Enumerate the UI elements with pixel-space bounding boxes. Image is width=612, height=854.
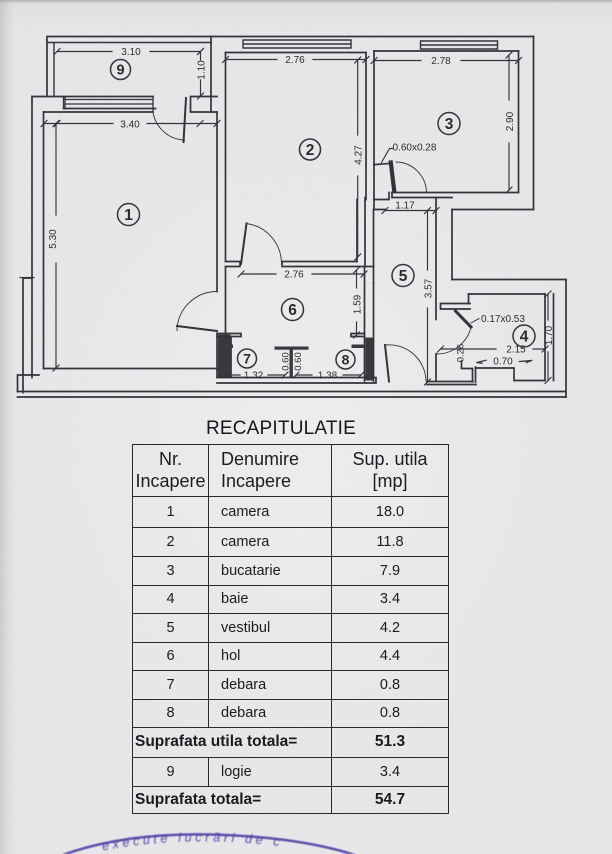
svg-text:1: 1 (124, 207, 133, 224)
svg-text:3.10: 3.10 (121, 47, 141, 58)
svg-text:execute lucrări de c: execute lucrări de c (101, 830, 284, 853)
svg-text:7: 7 (243, 351, 251, 367)
svg-text:1.17: 1.17 (395, 201, 415, 212)
svg-text:6: 6 (288, 302, 297, 319)
svg-text:3.57: 3.57 (424, 278, 435, 298)
svg-text:4.27: 4.27 (354, 145, 365, 165)
svg-text:5.30: 5.30 (48, 229, 59, 249)
svg-text:3: 3 (445, 116, 454, 133)
svg-text:9: 9 (116, 63, 124, 79)
svg-text:0.70: 0.70 (493, 357, 513, 368)
svg-text:0.60: 0.60 (281, 352, 292, 371)
svg-text:1.10: 1.10 (197, 60, 208, 80)
svg-text:1.32: 1.32 (244, 371, 264, 382)
svg-text:1.70: 1.70 (544, 325, 555, 345)
svg-text:2.90: 2.90 (505, 111, 516, 131)
svg-text:3.40: 3.40 (120, 120, 140, 131)
svg-text:5: 5 (399, 268, 408, 285)
svg-text:1.38: 1.38 (318, 371, 338, 382)
svg-text:2.15: 2.15 (506, 345, 526, 356)
svg-text:8: 8 (342, 352, 350, 368)
svg-text:4: 4 (520, 329, 529, 346)
svg-text:0.60x0.28: 0.60x0.28 (393, 143, 437, 154)
svg-text:2.76: 2.76 (284, 270, 304, 281)
svg-text:0.60: 0.60 (293, 352, 304, 371)
svg-text:0.17x0.53: 0.17x0.53 (481, 314, 525, 325)
svg-text:2.76: 2.76 (285, 55, 305, 66)
svg-text:2: 2 (306, 142, 315, 159)
svg-text:0.26: 0.26 (456, 344, 467, 363)
svg-text:2.78: 2.78 (431, 56, 451, 67)
svg-text:1.59: 1.59 (353, 294, 364, 314)
